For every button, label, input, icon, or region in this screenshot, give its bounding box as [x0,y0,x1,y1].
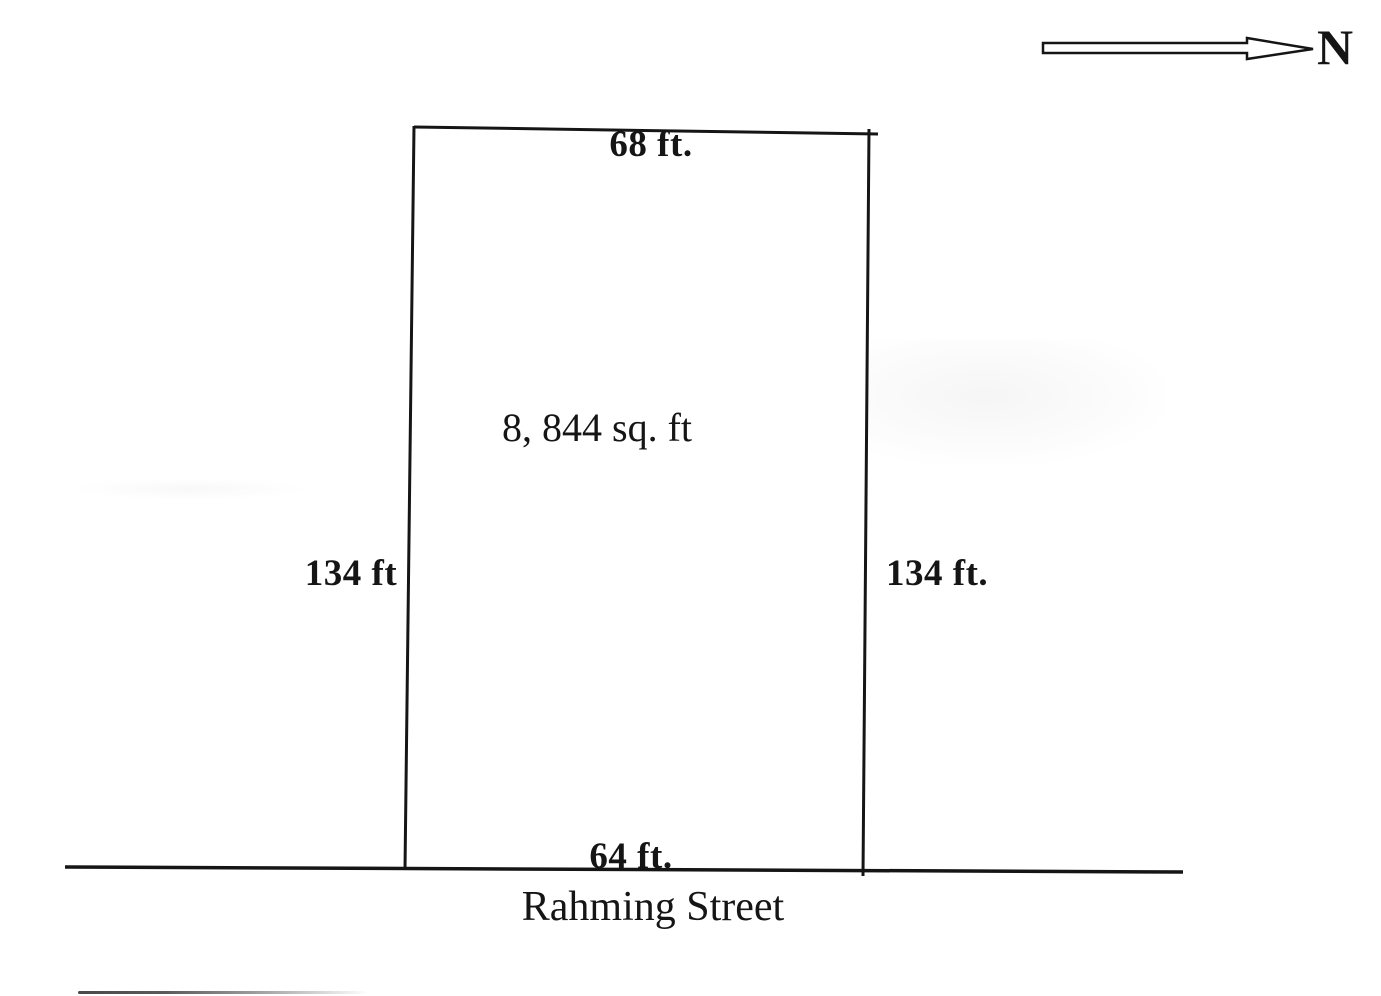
lot-right-edge [863,129,869,876]
right-dimension-label: 134 ft. [886,555,988,592]
bottom-dimension-label: 64 ft. [589,838,672,875]
area-label: 8, 844 sq. ft [502,408,692,448]
survey-diagram-page: N 68 ft. 8, 844 sq. ft 134 ft 134 ft. 64… [0,0,1381,996]
top-dimension-label: 68 ft. [609,126,692,163]
street-name-label: Rahming Street [522,886,784,928]
north-arrow-icon [1043,38,1313,59]
lot-left-edge [405,126,414,869]
scan-artifact-line [78,991,368,994]
left-dimension-label: 134 ft [305,555,397,592]
north-label: N [1317,22,1353,72]
